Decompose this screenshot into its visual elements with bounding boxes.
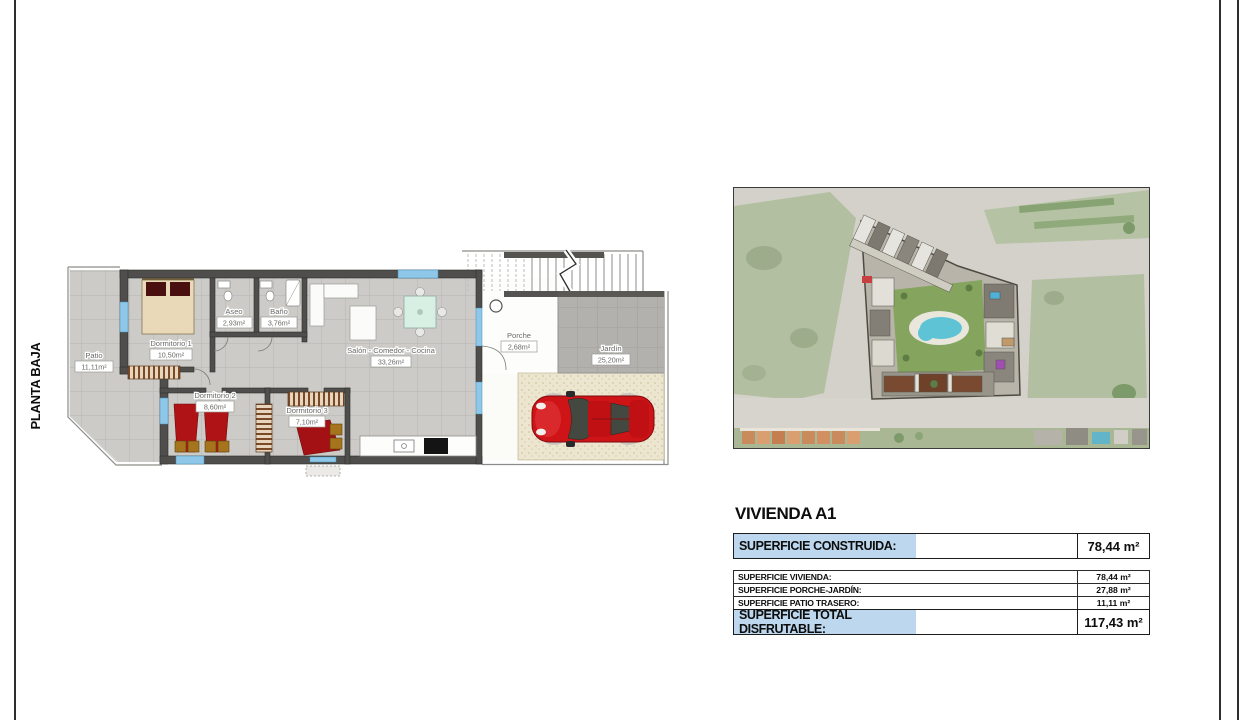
- aerial-flag: [862, 276, 872, 283]
- aerial-bottom-strip: [734, 428, 1149, 448]
- row-superficie-vivienda: SUPERFICIE VIVIENDA: 78,44 m²: [733, 570, 1150, 584]
- svg-text:11,11m²: 11,11m²: [81, 363, 107, 372]
- construida-value: 78,44 m²: [1077, 534, 1149, 558]
- frame-line-left: [14, 0, 16, 720]
- floor-plan-drawing: Patio 11,11m² Dormitorio 1 10,50m² Aseo …: [58, 248, 673, 480]
- vivienda-label: SUPERFICIE VIVIENDA:: [734, 571, 1077, 583]
- aerial-buildings-right: [984, 284, 1014, 382]
- svg-text:Dormitorio 2: Dormitorio 2: [194, 391, 235, 400]
- drawing-sheet: PLANTA BAJA: [0, 0, 1240, 720]
- porche-jardin-value: 27,88 m²: [1077, 584, 1149, 596]
- wardrobe-dormitorio-1: [128, 366, 180, 379]
- frame-line-right-inner: [1219, 0, 1221, 720]
- entrance-step: [306, 466, 340, 476]
- unit-title: VIVIENDA A1: [735, 504, 1150, 524]
- row-superficie-construida: SUPERFICIE CONSTRUIDA: 78,44 m²: [733, 533, 1150, 559]
- svg-text:7,10m²: 7,10m²: [296, 418, 319, 427]
- room-label-dormitorio-3: Dormitorio 3 7,10m²: [286, 406, 327, 427]
- floor-title: PLANTA BAJA: [28, 326, 46, 446]
- porche-jardin-label: SUPERFICIE PORCHE-JARDÍN:: [734, 584, 1077, 596]
- total-label: SUPERFICIE TOTAL DISFRUTABLE:: [734, 610, 916, 634]
- svg-text:Aseo: Aseo: [225, 307, 242, 316]
- room-label-dormitorio-2: Dormitorio 2 8,60m²: [194, 391, 235, 412]
- side-walkway: [482, 374, 518, 460]
- total-spacer: [916, 610, 1077, 634]
- svg-text:Porche: Porche: [507, 331, 531, 340]
- car: [532, 391, 654, 447]
- svg-text:Patio: Patio: [85, 351, 102, 360]
- svg-text:10,50m²: 10,50m²: [158, 351, 185, 360]
- svg-text:2,68m²: 2,68m²: [508, 343, 531, 352]
- aerial-site-plan: [733, 187, 1150, 449]
- frame-line-right-outer: [1237, 0, 1239, 720]
- aerial-grass-right: [1027, 274, 1147, 412]
- svg-text:Dormitorio 3: Dormitorio 3: [286, 406, 327, 415]
- total-value: 117,43 m²: [1077, 610, 1149, 634]
- vivienda-value: 78,44 m²: [1077, 571, 1149, 583]
- wardrobe-dormitorio-3: [288, 392, 344, 406]
- svg-text:Salón - Comedor - Cocina: Salón - Comedor - Cocina: [347, 346, 436, 355]
- svg-text:3,76m²: 3,76m²: [268, 319, 291, 328]
- porch-door-symbol: [490, 300, 502, 312]
- svg-text:2,93m²: 2,93m²: [223, 319, 246, 328]
- svg-text:33,26m²: 33,26m²: [378, 358, 405, 367]
- wardrobe-hall: [256, 404, 272, 452]
- surface-summary: VIVIENDA A1 SUPERFICIE CONSTRUIDA: 78,44…: [733, 504, 1150, 635]
- construida-spacer: [916, 534, 1077, 558]
- aerial-road-bottom: [734, 398, 1149, 430]
- svg-text:Jardín: Jardín: [600, 344, 621, 353]
- row-superficie-total: SUPERFICIE TOTAL DISFRUTABLE: 117,43 m²: [733, 609, 1150, 635]
- bed-dormitorio-1: [142, 278, 194, 334]
- aerial-buildings-bottom-row: [882, 372, 994, 396]
- room-label-dormitorio-1: Dormitorio 1 10,50m²: [150, 339, 192, 360]
- svg-text:25,20m²: 25,20m²: [598, 356, 625, 365]
- svg-text:Dormitorio 1: Dormitorio 1: [150, 339, 191, 348]
- jardin-top-wall: [558, 291, 664, 297]
- svg-text:Baño: Baño: [270, 307, 288, 316]
- kitchen-counter: [360, 436, 476, 456]
- row-superficie-porche-jardin: SUPERFICIE PORCHE-JARDÍN: 27,88 m²: [733, 583, 1150, 597]
- construida-label: SUPERFICIE CONSTRUIDA:: [734, 534, 916, 558]
- patio-trasero-value: 11,11 m²: [1077, 597, 1149, 609]
- svg-text:8,60m²: 8,60m²: [204, 403, 227, 412]
